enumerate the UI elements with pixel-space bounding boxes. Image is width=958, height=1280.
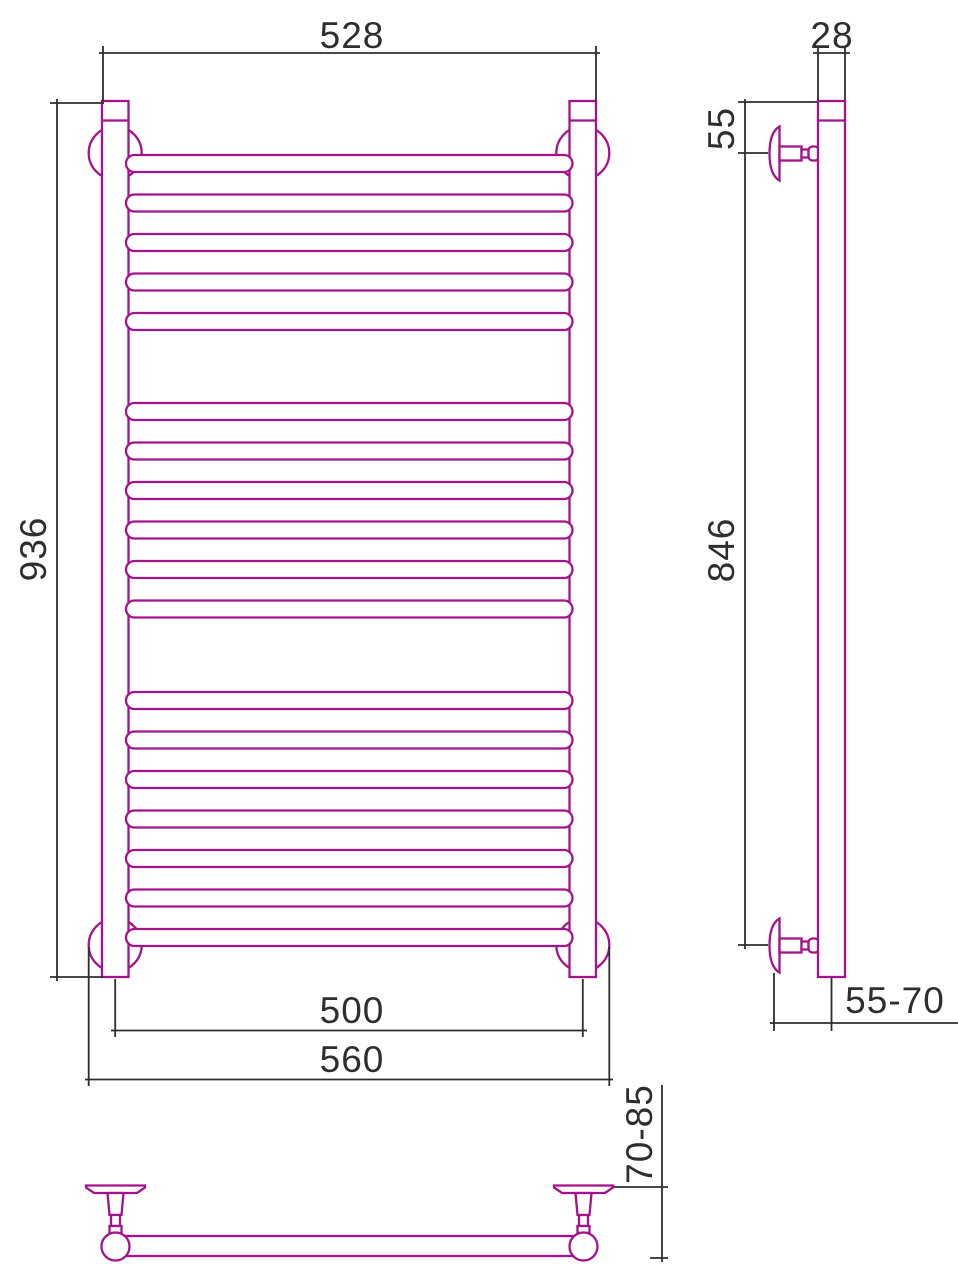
dim-label-top-bracket-offset: 55 [701, 107, 742, 150]
rung [126, 692, 573, 709]
dimension-55-70: 55-70 [770, 973, 958, 1031]
bracket-flange [770, 919, 780, 973]
top-view [86, 1186, 613, 1261]
towel-rail-technical-drawing: 528 936 28 55 846 500 560 55-70 [0, 0, 958, 1280]
rung [126, 274, 573, 291]
dimension-936: 936 [13, 99, 104, 981]
plan-post-ball-left [102, 1233, 130, 1261]
rung [126, 929, 573, 946]
dimension-528: 528 [99, 15, 600, 101]
bracket-stem [108, 1193, 124, 1215]
dim-label-overall-height: 936 [13, 517, 54, 582]
drawing-canvas: 528 936 28 55 846 500 560 55-70 [0, 0, 958, 1280]
dim-label-axis-width: 500 [320, 990, 385, 1031]
front-view [89, 101, 610, 977]
rung [126, 313, 573, 330]
dimension-28: 28 [810, 15, 853, 100]
rung [126, 443, 573, 460]
right-post [570, 101, 597, 977]
plan-bar [116, 1236, 584, 1256]
dimension-55-846: 55 846 [701, 99, 817, 949]
bracket-pin [780, 939, 802, 953]
side-view [770, 101, 846, 977]
rung [126, 561, 573, 578]
rung [126, 850, 573, 867]
wall-bracket-bottom [770, 919, 820, 973]
bracket-neck [111, 1215, 120, 1226]
bracket-flange [770, 127, 780, 181]
rung [126, 234, 573, 251]
left-post [102, 101, 129, 977]
plan-bracket-right [554, 1186, 613, 1234]
dim-label-depth: 28 [810, 15, 853, 56]
rung [126, 155, 573, 172]
plan-bracket-left [86, 1186, 145, 1234]
wall-bracket-top [770, 127, 820, 181]
dim-label-top-width: 528 [320, 15, 385, 56]
rung [126, 811, 573, 828]
rung [126, 601, 573, 618]
plan-post-ball-right [570, 1233, 598, 1261]
dimension-70-85: 70-85 [614, 1084, 668, 1262]
side-profile-bar [818, 101, 845, 977]
bracket-stem [576, 1193, 592, 1215]
dim-label-flange-width: 560 [320, 1039, 385, 1080]
dimension-500: 500 [111, 979, 587, 1037]
rung [126, 771, 573, 788]
rungs [126, 155, 573, 946]
dim-label-wall-to-axis: 55-70 [845, 980, 945, 1021]
rung [126, 732, 573, 749]
rung [126, 482, 573, 499]
bracket-neck [579, 1215, 588, 1226]
rung [126, 890, 573, 907]
bracket-pin [780, 147, 802, 161]
rung [126, 195, 573, 212]
dim-label-wall-to-front: 70-85 [619, 1084, 660, 1184]
rung [126, 522, 573, 539]
dim-label-bracket-span: 846 [701, 518, 742, 583]
rung [126, 403, 573, 420]
